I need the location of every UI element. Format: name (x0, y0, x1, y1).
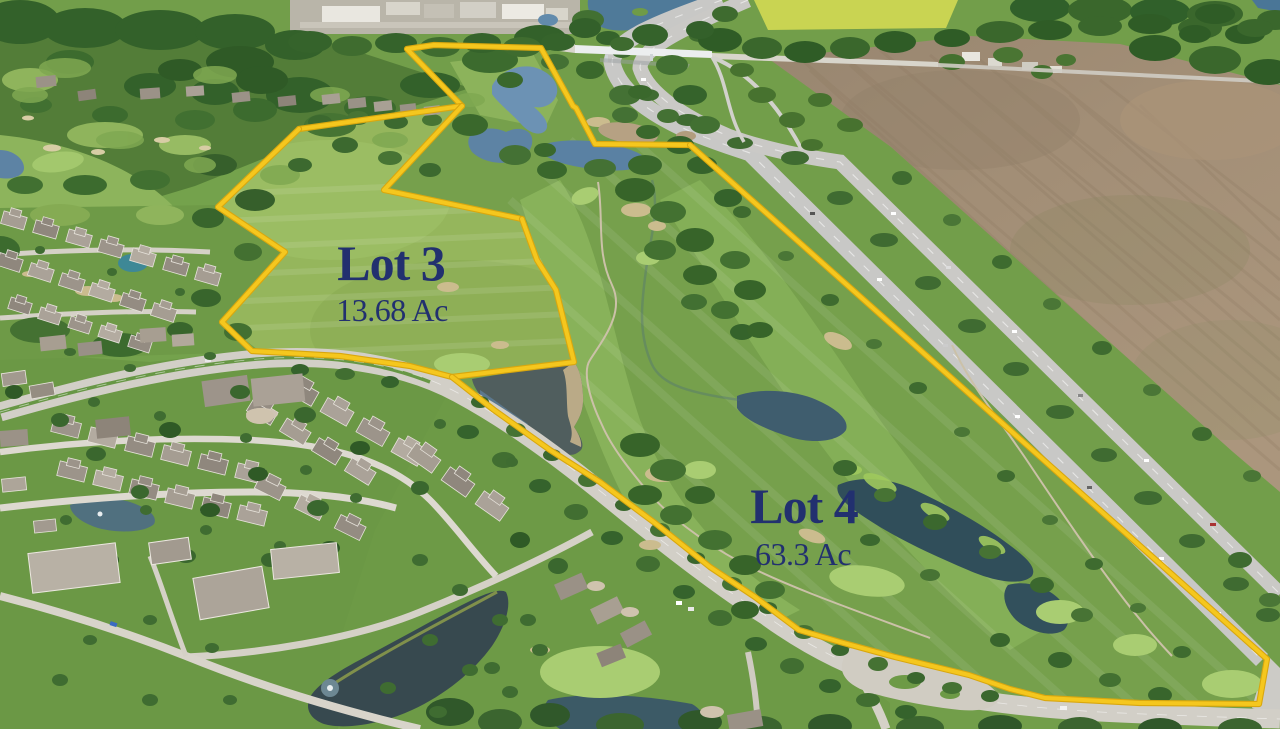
svg-text:63.3 Ac: 63.3 Ac (755, 536, 851, 572)
svg-text:13.68 Ac: 13.68 Ac (336, 292, 448, 328)
svg-text:Lot 3: Lot 3 (337, 235, 445, 291)
svg-text:Lot 4: Lot 4 (750, 478, 859, 534)
